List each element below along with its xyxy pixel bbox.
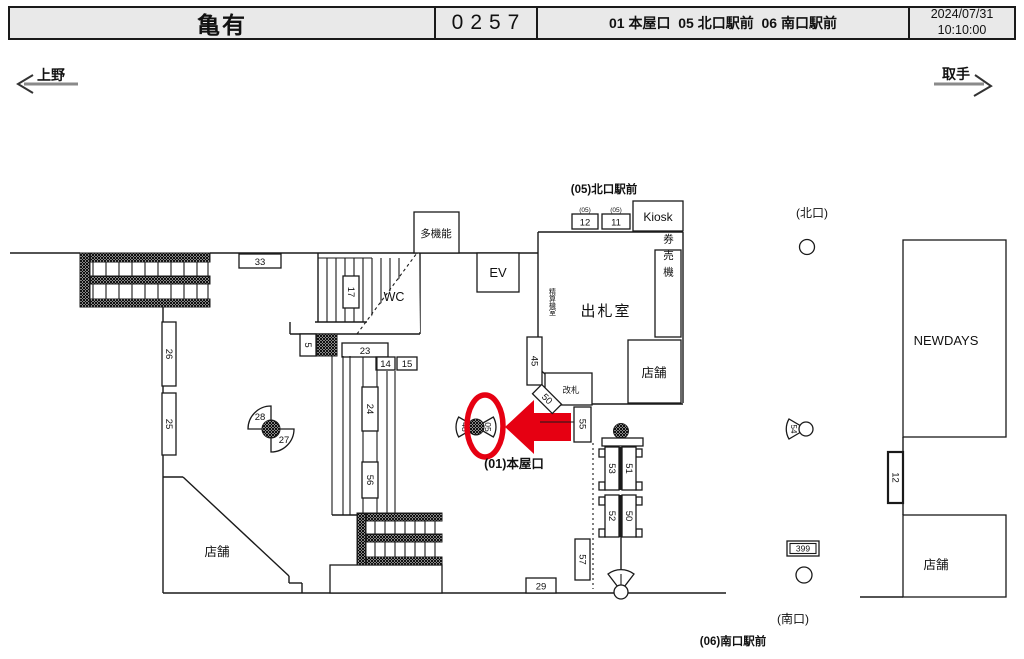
hatch-block [317, 334, 337, 356]
gate-52-label: 52 [606, 511, 617, 522]
north-plaza-label: (05)北口駅前 [571, 182, 638, 196]
camera-17[interactable]: 17 [343, 276, 359, 308]
ticket-gates: 53 51 52 50 [599, 424, 643, 600]
main-entrance-label: (01)本屋口 [484, 456, 544, 471]
stair-landing [330, 565, 442, 593]
camera-dome-icon [614, 424, 629, 439]
shop-left-label: 店舗 [204, 545, 229, 559]
camera-56[interactable]: 56 [362, 462, 378, 498]
camera-17-label: 17 [345, 287, 356, 298]
gate-label: 改札 [562, 385, 580, 395]
camera-56-label: 56 [364, 475, 375, 486]
gate-51-label: 51 [623, 463, 634, 474]
stairs-northwest [80, 253, 210, 307]
camera-54-label: 54 [789, 425, 798, 434]
toilet-label: WC [384, 290, 405, 304]
south-plaza-label: (06)南口駅前 [700, 634, 767, 648]
pillar-north-icon [800, 240, 815, 255]
camera-5[interactable]: 5 [300, 334, 316, 356]
camera-45[interactable]: 45 [527, 337, 542, 385]
camera-5-label: 5 [302, 342, 313, 347]
camera-28-label: 28 [255, 412, 266, 423]
camera-57[interactable]: 57 [575, 539, 590, 580]
camera-24-label: 24 [364, 404, 375, 415]
elevator: EV [477, 253, 519, 292]
stairs-south [330, 513, 442, 593]
camera-25-label: 25 [163, 419, 174, 430]
camera-57-label: 57 [577, 554, 588, 565]
kiosk-label: Kiosk [643, 210, 673, 224]
shop-right-label: 店舗 [923, 558, 948, 572]
pole-icon [614, 585, 628, 599]
camera-26-label: 26 [163, 349, 174, 360]
camera-23[interactable]: 23 [342, 343, 388, 357]
camera-12-tag: (05) [579, 207, 591, 214]
camera-33[interactable]: 33 [239, 254, 281, 268]
camera-12-label: 12 [580, 218, 591, 229]
camera-15-label: 15 [402, 359, 413, 370]
shop-office-label: 店舗 [641, 366, 666, 380]
camera-48-05[interactable]: 48 05 [456, 417, 496, 437]
camera-399[interactable]: 399 [787, 541, 819, 556]
fare-adjust-room-label: 精算機室 [549, 287, 557, 316]
shop-office: 店舗 [628, 340, 681, 403]
camera-14-label: 14 [380, 359, 391, 370]
multi-function-room: 多機能 [414, 212, 459, 253]
selection-arrow-icon [505, 400, 571, 454]
camera-15[interactable]: 15 [397, 357, 417, 370]
camera-23-label: 23 [360, 346, 371, 357]
camera-29-label: 29 [536, 582, 547, 593]
direction-toride: 取手 [934, 66, 991, 96]
newdays-label: NEWDAYS [914, 333, 979, 348]
camera-27-label: 27 [279, 435, 290, 446]
camera-24[interactable]: 24 [362, 387, 378, 431]
direction-ueno: 上野 [18, 67, 78, 93]
camera-29[interactable]: 29 [526, 578, 556, 593]
newdays-shop: NEWDAYS [903, 240, 1006, 437]
camera-12-north[interactable]: (05) 12 [572, 207, 598, 229]
ticket-machine-room: 券売機 [655, 232, 681, 337]
camera-05-label: 05 [483, 422, 493, 432]
camera-14[interactable]: 14 [376, 357, 395, 370]
camera-33-label: 33 [255, 257, 266, 268]
camera-54[interactable]: 54 [786, 419, 813, 439]
north-exit-label: (北口) [796, 206, 828, 220]
camera-11-label: 11 [611, 218, 621, 229]
camera-45-label: 45 [529, 356, 540, 367]
camera-12e-label: 12 [890, 472, 901, 483]
right-station-label: 取手 [942, 66, 970, 82]
multi-function-label: 多機能 [420, 227, 452, 240]
gate-50-label: 50 [623, 511, 634, 522]
camera-399-label: 399 [796, 544, 810, 554]
camera-26[interactable]: 26 [162, 322, 176, 386]
south-exit-label: (南口) [777, 611, 809, 626]
ticket-machine-label: 券売機 [662, 232, 674, 282]
camera-11-north[interactable]: (05) 11 [602, 207, 630, 229]
station-map: 上野 取手 33 [0, 0, 1024, 659]
camera-25[interactable]: 25 [162, 393, 176, 455]
camera-55-label: 55 [577, 419, 588, 430]
gate-53-label: 53 [606, 463, 617, 474]
camera-55[interactable]: 55 [574, 407, 591, 442]
kiosk: Kiosk [633, 201, 683, 231]
elevator-label: EV [489, 265, 507, 280]
pillar-south-icon [796, 567, 812, 583]
left-station-label: 上野 [37, 67, 65, 83]
ticket-office-label: 出札室 [580, 303, 631, 320]
camera-12-east[interactable]: 12 [888, 452, 903, 503]
camera-28-27[interactable]: 28 27 [248, 406, 294, 452]
camera-11-tag: (05) [610, 207, 622, 214]
shop-right: 店舗 [860, 515, 1006, 597]
